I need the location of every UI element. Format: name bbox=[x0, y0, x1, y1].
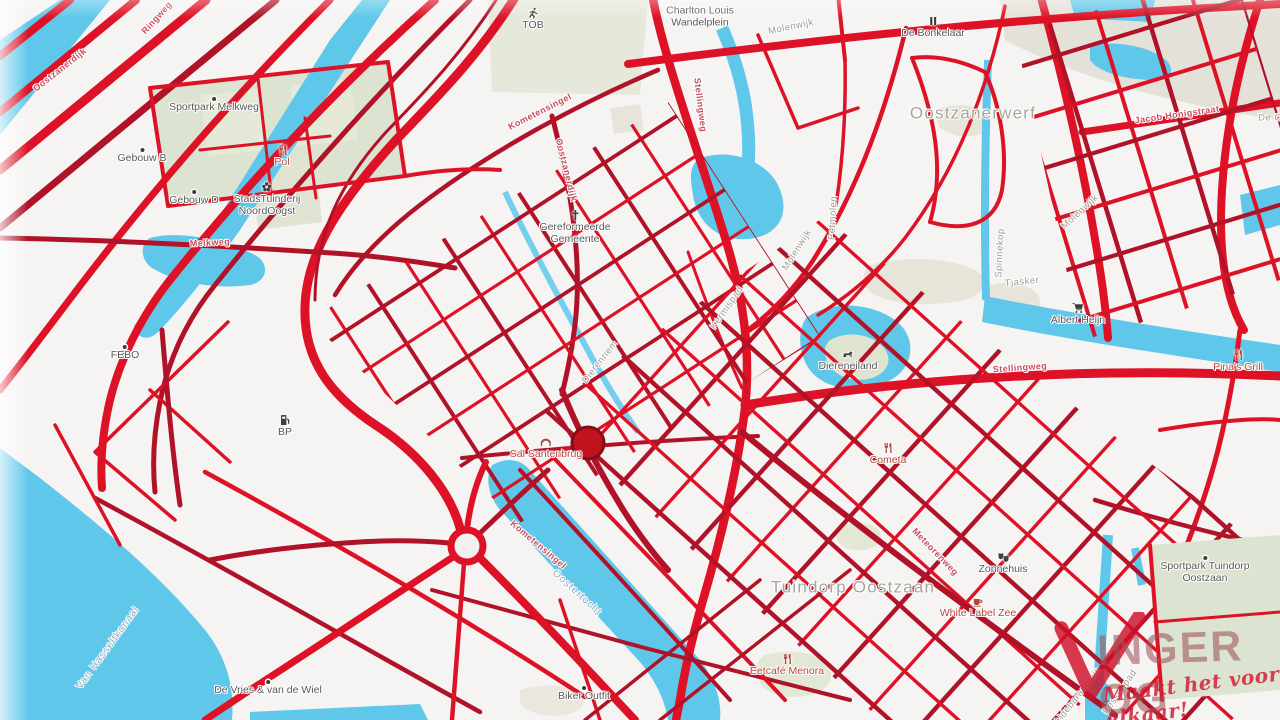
location-marker[interactable] bbox=[572, 427, 604, 459]
map-viewport[interactable]: Oostzanerwerf Tuindorp Oostzaan TOB Char… bbox=[0, 0, 1280, 720]
map-canvas[interactable] bbox=[0, 0, 1280, 720]
roundabout bbox=[451, 530, 483, 562]
